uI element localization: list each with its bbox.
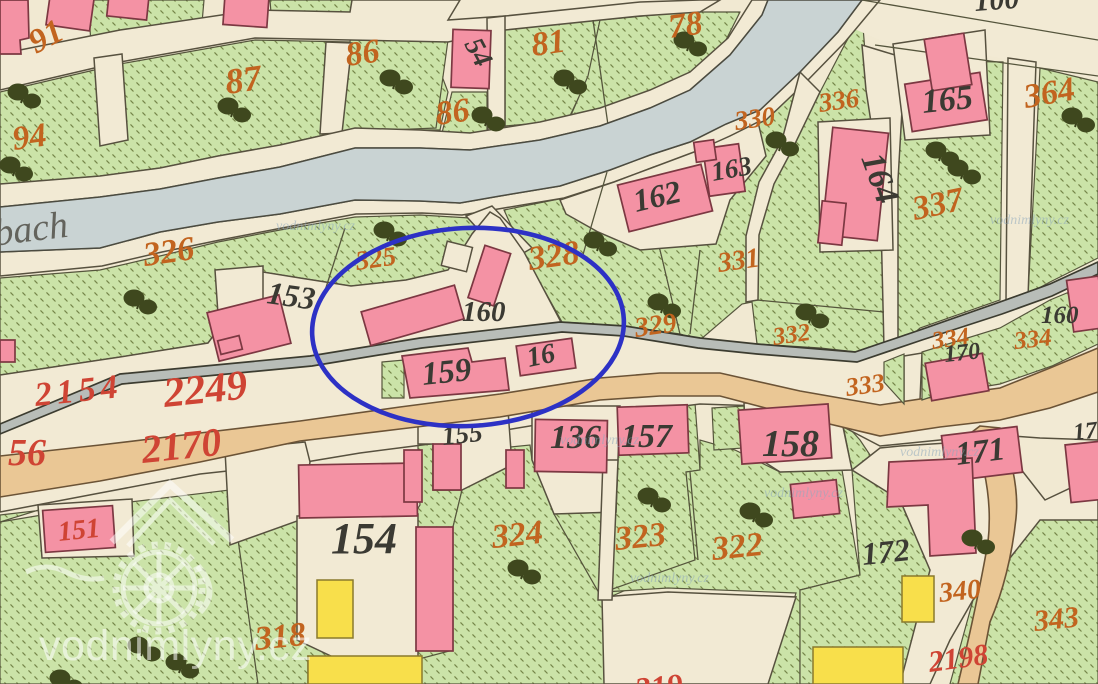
svg-text:330: 330 — [732, 101, 778, 137]
svg-text:56: 56 — [8, 432, 46, 474]
svg-text:340: 340 — [936, 574, 982, 609]
svg-text:vodnimlyny.cz: vodnimlyny.cz — [900, 445, 979, 460]
svg-text:329: 329 — [632, 307, 679, 344]
svg-text:333: 333 — [843, 368, 887, 402]
svg-text:2249: 2249 — [160, 362, 249, 417]
svg-text:vodnimlyny.cz: vodnimlyny.cz — [276, 219, 355, 234]
svg-text:170: 170 — [943, 338, 982, 368]
svg-text:153: 153 — [265, 274, 318, 316]
svg-text:154: 154 — [331, 514, 397, 563]
svg-text:vodnimlyny.cz: vodnimlyny.cz — [560, 433, 639, 448]
svg-text:100: 100 — [973, 0, 1020, 18]
svg-text:vodnimlyny.cz: vodnimlyny.cz — [764, 486, 843, 501]
svg-text:vodnimlyny.cz: vodnimlyny.cz — [39, 622, 312, 670]
svg-text:323: 323 — [612, 516, 668, 558]
svg-text:86: 86 — [343, 33, 382, 74]
svg-text:172: 172 — [860, 531, 912, 572]
svg-text:322: 322 — [709, 526, 765, 568]
svg-text:151: 151 — [56, 513, 101, 548]
svg-text:159: 159 — [420, 352, 473, 393]
svg-text:158: 158 — [762, 423, 819, 465]
svg-text:336: 336 — [816, 83, 862, 119]
svg-text:78: 78 — [666, 5, 705, 46]
svg-text:343: 343 — [1031, 600, 1080, 638]
svg-text:324: 324 — [489, 514, 545, 556]
svg-text:94: 94 — [10, 117, 49, 158]
svg-text:155: 155 — [440, 417, 483, 451]
svg-text:160: 160 — [462, 296, 506, 328]
svg-text:2170: 2170 — [138, 419, 223, 472]
svg-text:165: 165 — [920, 79, 975, 121]
svg-text:17: 17 — [1072, 417, 1098, 445]
svg-text:81: 81 — [529, 23, 568, 64]
svg-text:326: 326 — [140, 230, 197, 274]
svg-text:vodnimlyny.cz: vodnimlyny.cz — [990, 213, 1069, 228]
svg-text:vodnimlyny.cz: vodnimlyny.cz — [630, 571, 709, 586]
svg-text:86: 86 — [433, 92, 472, 133]
svg-text:332: 332 — [770, 319, 812, 351]
svg-text:331: 331 — [715, 242, 762, 279]
svg-text:160: 160 — [1041, 302, 1079, 329]
